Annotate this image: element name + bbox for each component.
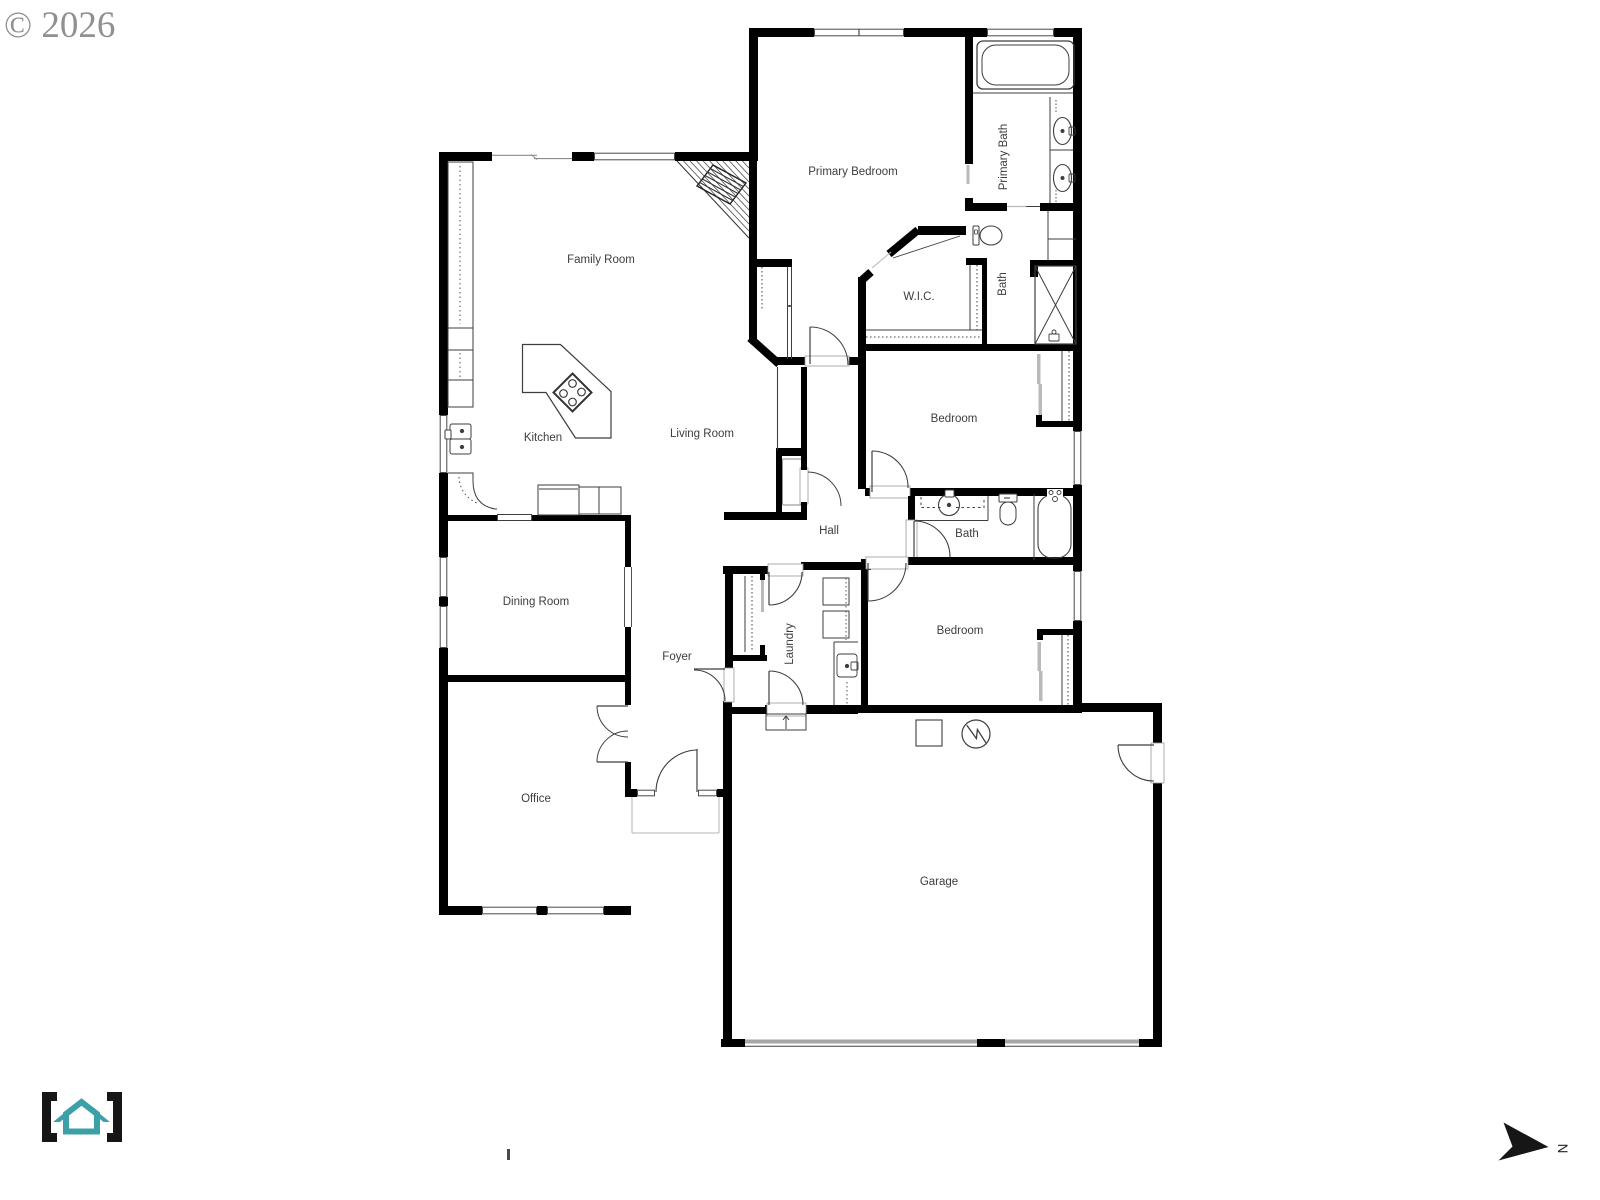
svg-text:Hall: Hall [819,525,839,537]
svg-text:Bath: Bath [997,272,1009,296]
svg-text:© 2026: © 2026 [4,5,115,46]
svg-text:Living Room: Living Room [670,428,734,440]
svg-text:N: N [1555,1144,1570,1154]
svg-text:Primary Bath: Primary Bath [998,124,1010,190]
svg-text:Kitchen: Kitchen [524,432,562,444]
svg-text:W.I.C.: W.I.C. [903,291,934,303]
svg-text:Bedroom: Bedroom [937,625,984,637]
svg-text:Garage: Garage [920,876,958,888]
svg-text:Bath: Bath [955,528,979,540]
svg-text:Office: Office [521,793,551,805]
svg-text:Foyer: Foyer [662,651,692,663]
svg-text:Primary Bedroom: Primary Bedroom [808,166,897,178]
svg-text:Dining Room: Dining Room [503,596,569,608]
svg-text:Laundry: Laundry [784,623,796,665]
svg-text:Bedroom: Bedroom [931,413,978,425]
svg-text:Family Room: Family Room [567,254,635,266]
